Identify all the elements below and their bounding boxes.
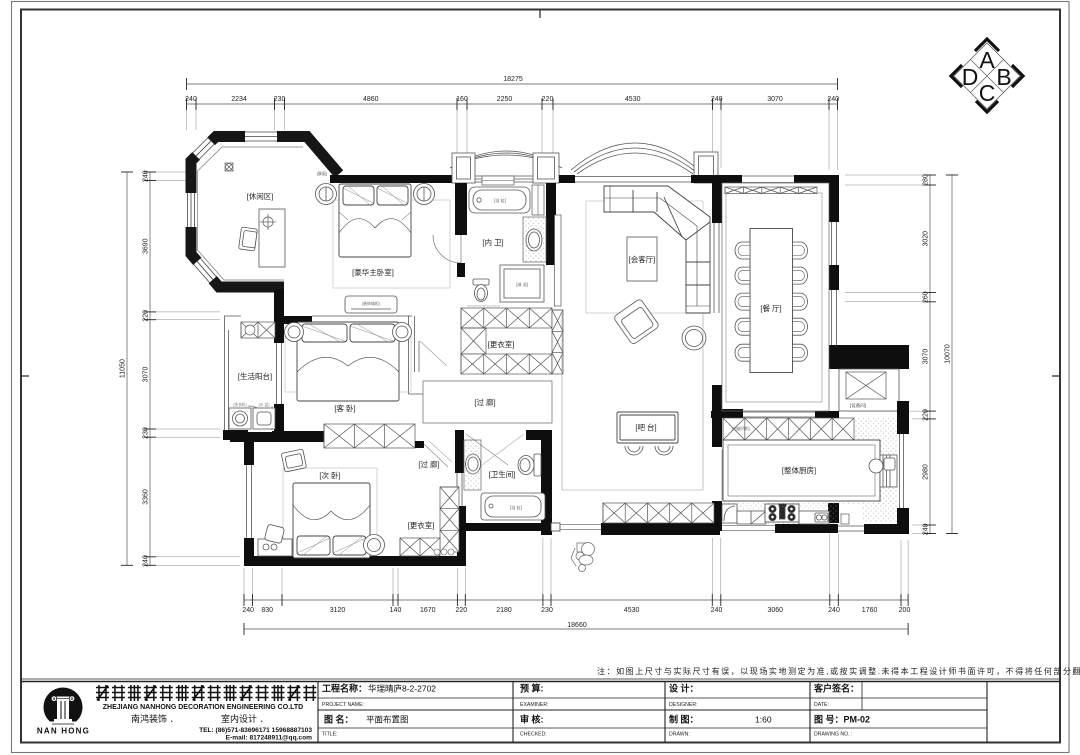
svg-text:2180: 2180 xyxy=(496,607,512,614)
svg-text:工程名称：: 工程名称： xyxy=(322,683,367,694)
svg-text:2980: 2980 xyxy=(923,464,930,480)
svg-text:[吧 台]: [吧 台] xyxy=(635,422,656,432)
svg-text:PROJECT NAME:: PROJECT NAME: xyxy=(322,702,364,708)
svg-text:2250: 2250 xyxy=(497,96,513,103)
svg-text:预 算:: 预 算: xyxy=(520,683,544,694)
svg-text:10070: 10070 xyxy=(945,344,952,364)
svg-text:DATE:: DATE: xyxy=(814,702,829,708)
svg-text:260: 260 xyxy=(923,291,930,303)
svg-text:南鸿装饰 ．: 南鸿装饰 ． xyxy=(131,713,179,724)
svg-text:3060: 3060 xyxy=(768,607,784,614)
svg-text:[会客厅]: [会客厅] xyxy=(629,254,656,264)
svg-text:(装饰矮柜): (装饰矮柜) xyxy=(362,300,381,306)
svg-text:1:60: 1:60 xyxy=(755,715,772,725)
svg-text:230: 230 xyxy=(541,607,553,614)
svg-text:DESIGNER:: DESIGNER: xyxy=(669,702,698,708)
svg-text:TEL: (86)571-83696171 1596888: TEL: (86)571-83696171 15968887103 xyxy=(199,727,312,734)
svg-text:160: 160 xyxy=(456,96,468,103)
svg-text:[设备间]: [设备间] xyxy=(850,402,866,409)
svg-text:3360: 3360 xyxy=(143,489,150,505)
svg-text:280: 280 xyxy=(923,174,930,186)
svg-text:设 计：: 设 计： xyxy=(669,683,699,694)
svg-text:[更衣室]: [更衣室] xyxy=(408,520,435,530)
svg-text:[过 廊]: [过 廊] xyxy=(474,397,495,407)
svg-text:830: 830 xyxy=(261,607,273,614)
svg-text:B: B xyxy=(996,64,1011,90)
svg-text:制 图：: 制 图： xyxy=(669,714,699,725)
svg-text:18275: 18275 xyxy=(503,76,523,83)
svg-text:240: 240 xyxy=(185,96,197,103)
svg-text:240: 240 xyxy=(143,555,150,567)
svg-text:4530: 4530 xyxy=(624,607,640,614)
svg-text:220: 220 xyxy=(923,409,930,421)
svg-text:[餐 厅]: [餐 厅] xyxy=(760,304,781,313)
svg-text:18660: 18660 xyxy=(567,622,587,629)
svg-text:注：如图上尺寸与实际尺寸有误，以现场实地测定为准,或按实调整: 注：如图上尺寸与实际尺寸有误，以现场实地测定为准,或按实调整.未得本工程设计师书… xyxy=(597,666,1080,676)
svg-text:客户签名：: 客户签名： xyxy=(813,683,859,694)
svg-text:2234: 2234 xyxy=(231,96,247,103)
svg-text:[洗衣机]: [洗衣机] xyxy=(233,402,247,407)
svg-text:[水 盆]: [水 盆] xyxy=(259,402,270,407)
svg-text:[整体厨房]: [整体厨房] xyxy=(782,465,816,475)
svg-text:4860: 4860 xyxy=(363,96,379,103)
svg-text:240: 240 xyxy=(711,607,723,614)
svg-text:[过 廊]: [过 廊] xyxy=(418,459,439,469)
svg-text:[飘窗]: [飘窗] xyxy=(317,170,327,176)
svg-text:230: 230 xyxy=(274,96,286,103)
svg-text:[更衣室]: [更衣室] xyxy=(488,339,515,349)
svg-text:240: 240 xyxy=(143,170,150,182)
svg-text:3020: 3020 xyxy=(923,231,930,247)
svg-text:图 名：: 图 名： xyxy=(324,714,354,725)
svg-text:[生活阳台]: [生活阳台] xyxy=(238,371,272,381)
svg-text:[内 卫]: [内 卫] xyxy=(482,237,503,247)
svg-text:[客 卧]: [客 卧] xyxy=(334,403,355,413)
svg-text:TITLE:: TITLE: xyxy=(322,732,338,738)
svg-text:图 号：PM-02: 图 号：PM-02 xyxy=(814,715,870,725)
svg-text:[浴 缸]: [浴 缸] xyxy=(494,197,506,204)
svg-text:[淋 浴]: [淋 浴] xyxy=(516,281,528,288)
svg-text:[次 卧]: [次 卧] xyxy=(319,470,340,480)
svg-text:3070: 3070 xyxy=(143,367,150,383)
svg-text:240: 240 xyxy=(242,607,254,614)
svg-text:3070: 3070 xyxy=(767,96,783,103)
svg-text:140: 140 xyxy=(390,607,402,614)
svg-text:220: 220 xyxy=(542,96,554,103)
svg-text:CHECKED:: CHECKED: xyxy=(520,732,547,738)
svg-text:1760: 1760 xyxy=(862,607,878,614)
svg-text:1670: 1670 xyxy=(420,607,436,614)
svg-text:[豪华主卧室]: [豪华主卧室] xyxy=(352,267,394,277)
svg-text:200: 200 xyxy=(899,607,911,614)
svg-text:华瑞晴庐8-2-2702: 华瑞晴庐8-2-2702 xyxy=(368,684,436,694)
svg-text:[卫生间]: [卫生间] xyxy=(489,469,516,479)
svg-text:(内嵌吊柜): (内嵌吊柜) xyxy=(732,425,751,431)
svg-text:240: 240 xyxy=(827,96,839,103)
svg-text:[浴 缸]: [浴 缸] xyxy=(510,504,522,511)
svg-text:240: 240 xyxy=(828,607,840,614)
svg-text:审 核:: 审 核: xyxy=(520,714,544,725)
svg-text:3070: 3070 xyxy=(923,349,930,365)
svg-text:230: 230 xyxy=(143,427,150,439)
svg-text:[休闲区]: [休闲区] xyxy=(247,191,274,201)
svg-text:3690: 3690 xyxy=(143,238,150,254)
svg-text:室内设计 ．: 室内设计 ． xyxy=(221,713,269,724)
svg-text:240: 240 xyxy=(711,96,723,103)
svg-text:220: 220 xyxy=(455,607,467,614)
svg-text:DRAWING NO. :: DRAWING NO. : xyxy=(814,732,852,738)
svg-text:4530: 4530 xyxy=(625,96,641,103)
svg-text:EXAMINER:: EXAMINER: xyxy=(520,702,549,708)
svg-text:NAN HONG: NAN HONG xyxy=(37,727,90,736)
svg-text:E-mail: 817248911@qq.com: E-mail: 817248911@qq.com xyxy=(226,735,312,742)
svg-text:C: C xyxy=(979,80,996,106)
svg-text:240: 240 xyxy=(923,523,930,535)
svg-text:3120: 3120 xyxy=(330,607,346,614)
svg-text:D: D xyxy=(962,64,979,90)
svg-text:DRAWN:: DRAWN: xyxy=(669,732,690,738)
svg-text:平面布置图: 平面布置图 xyxy=(366,715,409,725)
svg-text:A: A xyxy=(979,47,995,73)
svg-text:11050: 11050 xyxy=(120,359,127,378)
svg-text:ZHEJIANG NANHONG DECORATION: ZHEJIANG NANHONG DECORATION ENGINEERING … xyxy=(103,704,303,711)
svg-text:220: 220 xyxy=(143,310,150,322)
